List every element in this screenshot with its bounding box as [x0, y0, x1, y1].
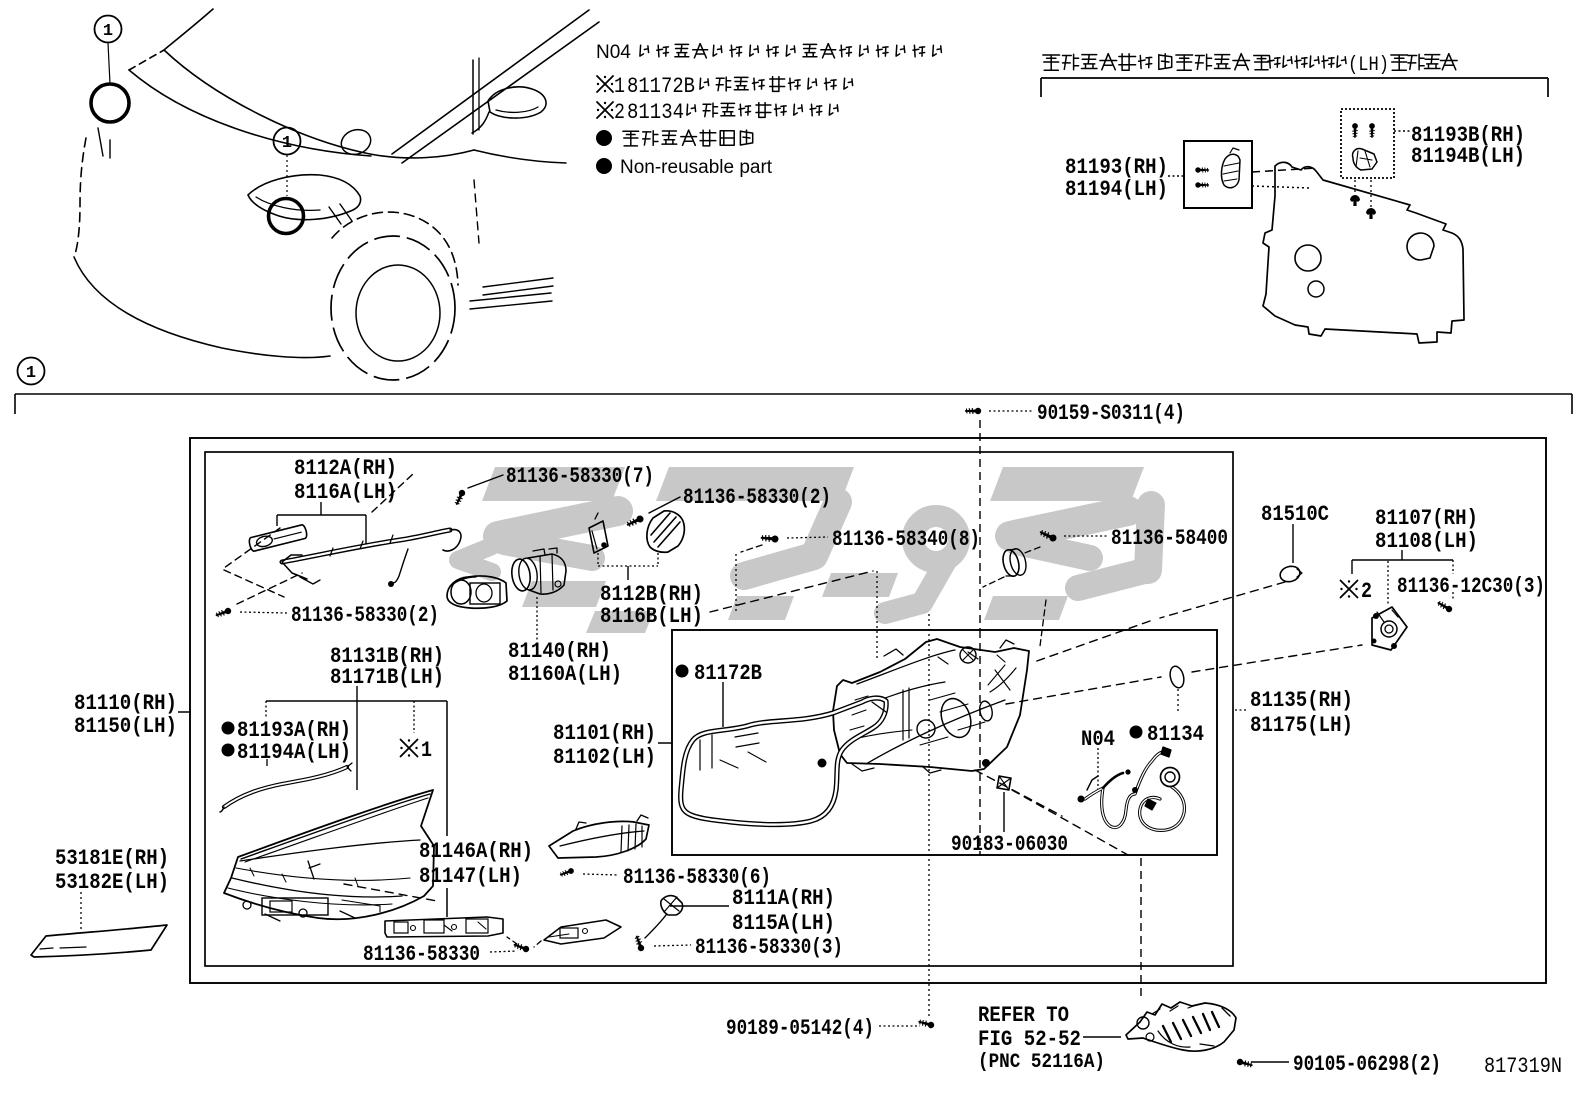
svg-text:1: 1	[614, 74, 625, 99]
svg-text:81147(LH): 81147(LH)	[419, 864, 522, 889]
svg-text:53182E(LH): 53182E(LH)	[55, 870, 169, 895]
svg-text:REFER TO: REFER TO	[978, 1003, 1069, 1028]
svg-text:53181E(RH): 53181E(RH)	[55, 846, 169, 871]
svg-text:90183-06030: 90183-06030	[951, 832, 1068, 857]
svg-text:81146A(RH): 81146A(RH)	[419, 839, 533, 864]
svg-text:81136-58340(8): 81136-58340(8)	[832, 527, 980, 552]
svg-text:FIG 52-52: FIG 52-52	[978, 1027, 1081, 1052]
svg-text:81136-58330(2): 81136-58330(2)	[683, 485, 831, 510]
svg-text:1: 1	[103, 22, 113, 41]
svg-text:81150(LH): 81150(LH)	[74, 714, 177, 739]
svg-text:81172B: 81172B	[627, 74, 695, 99]
svg-text:81108(LH): 81108(LH)	[1375, 529, 1478, 554]
svg-text:81140(RH): 81140(RH)	[508, 639, 611, 664]
svg-text:817319N: 817319N	[1484, 1054, 1562, 1079]
svg-text:1: 1	[282, 134, 292, 153]
svg-text:81136-58400: 81136-58400	[1111, 526, 1228, 551]
svg-text:81194A(LH): 81194A(LH)	[237, 740, 351, 765]
svg-text:81110(RH): 81110(RH)	[74, 691, 177, 716]
svg-text:(PNC 52116A): (PNC 52116A)	[978, 1051, 1105, 1074]
svg-text:81171B(LH): 81171B(LH)	[330, 665, 444, 690]
svg-text:8116B(LH): 8116B(LH)	[600, 604, 703, 629]
svg-text:N04: N04	[596, 42, 631, 63]
svg-text:2: 2	[614, 100, 625, 125]
svg-text:8115A(LH): 8115A(LH)	[732, 911, 835, 936]
svg-text:8116A(LH): 8116A(LH)	[294, 480, 397, 505]
svg-text:1: 1	[421, 738, 432, 763]
svg-text:81101(RH): 81101(RH)	[553, 721, 656, 746]
svg-text:81102(LH): 81102(LH)	[553, 745, 656, 770]
svg-text:81136-58330(3): 81136-58330(3)	[695, 935, 843, 960]
svg-text:1: 1	[26, 364, 36, 383]
svg-text:81136-58330(7): 81136-58330(7)	[506, 464, 654, 489]
svg-text:90105-06298(2): 90105-06298(2)	[1293, 1052, 1441, 1077]
svg-text:90189-05142(4): 90189-05142(4)	[726, 1016, 874, 1041]
svg-text:81136-12C30(3): 81136-12C30(3)	[1397, 574, 1545, 599]
svg-text:81160A(LH): 81160A(LH)	[508, 662, 622, 687]
svg-text:81172B: 81172B	[694, 661, 762, 686]
svg-text:(LH): (LH)	[1348, 54, 1389, 77]
svg-text:81134: 81134	[1147, 722, 1204, 747]
svg-text:2: 2	[1361, 579, 1372, 604]
svg-text:90159-S0311(4): 90159-S0311(4)	[1037, 401, 1185, 426]
svg-text:8111A(RH): 8111A(RH)	[732, 886, 835, 911]
svg-text:81194B(LH): 81194B(LH)	[1411, 144, 1525, 169]
svg-text:81194(LH): 81194(LH)	[1065, 177, 1168, 202]
svg-text:81136-58330: 81136-58330	[363, 942, 480, 967]
svg-text:81107(RH): 81107(RH)	[1375, 506, 1478, 531]
svg-text:81134: 81134	[627, 100, 684, 125]
svg-text:81135(RH): 81135(RH)	[1250, 688, 1353, 713]
svg-text:81175(LH): 81175(LH)	[1250, 713, 1353, 738]
svg-text:81510C: 81510C	[1261, 502, 1329, 527]
svg-text:81136-58330(2): 81136-58330(2)	[291, 603, 439, 628]
svg-text:8112A(RH): 8112A(RH)	[294, 456, 397, 481]
svg-text:Non-reusable part: Non-reusable part	[620, 157, 773, 178]
